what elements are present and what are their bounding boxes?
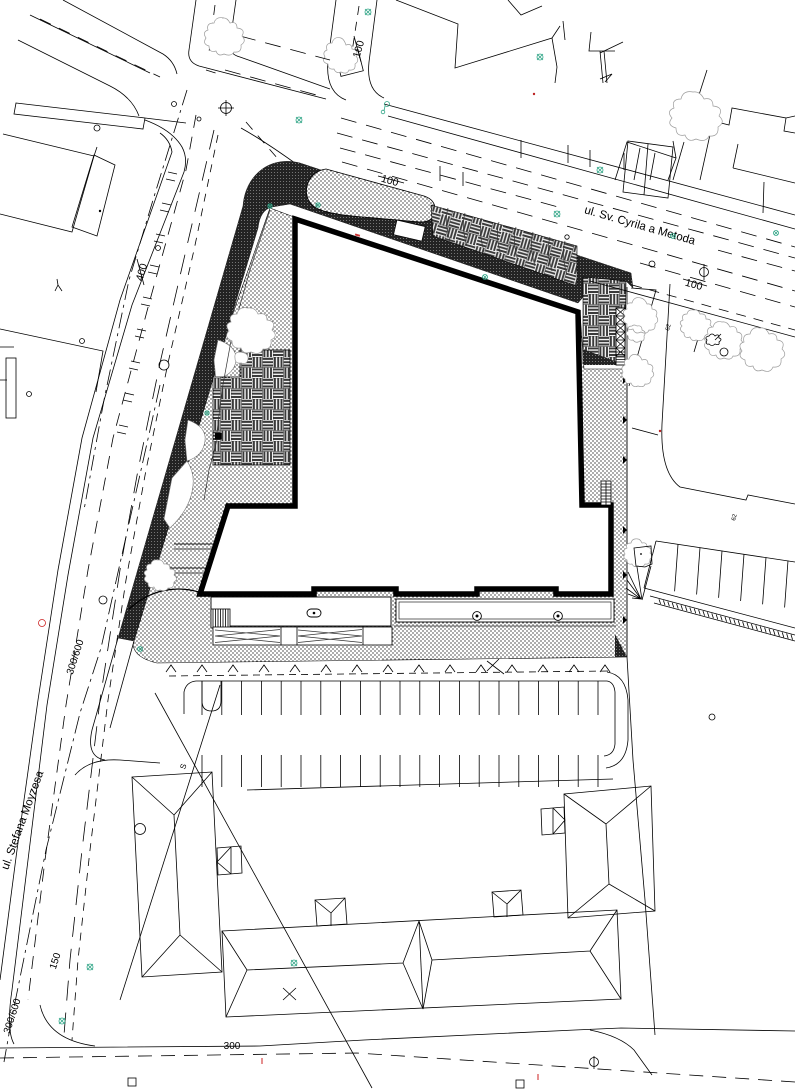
svg-text:300: 300	[224, 1041, 241, 1052]
